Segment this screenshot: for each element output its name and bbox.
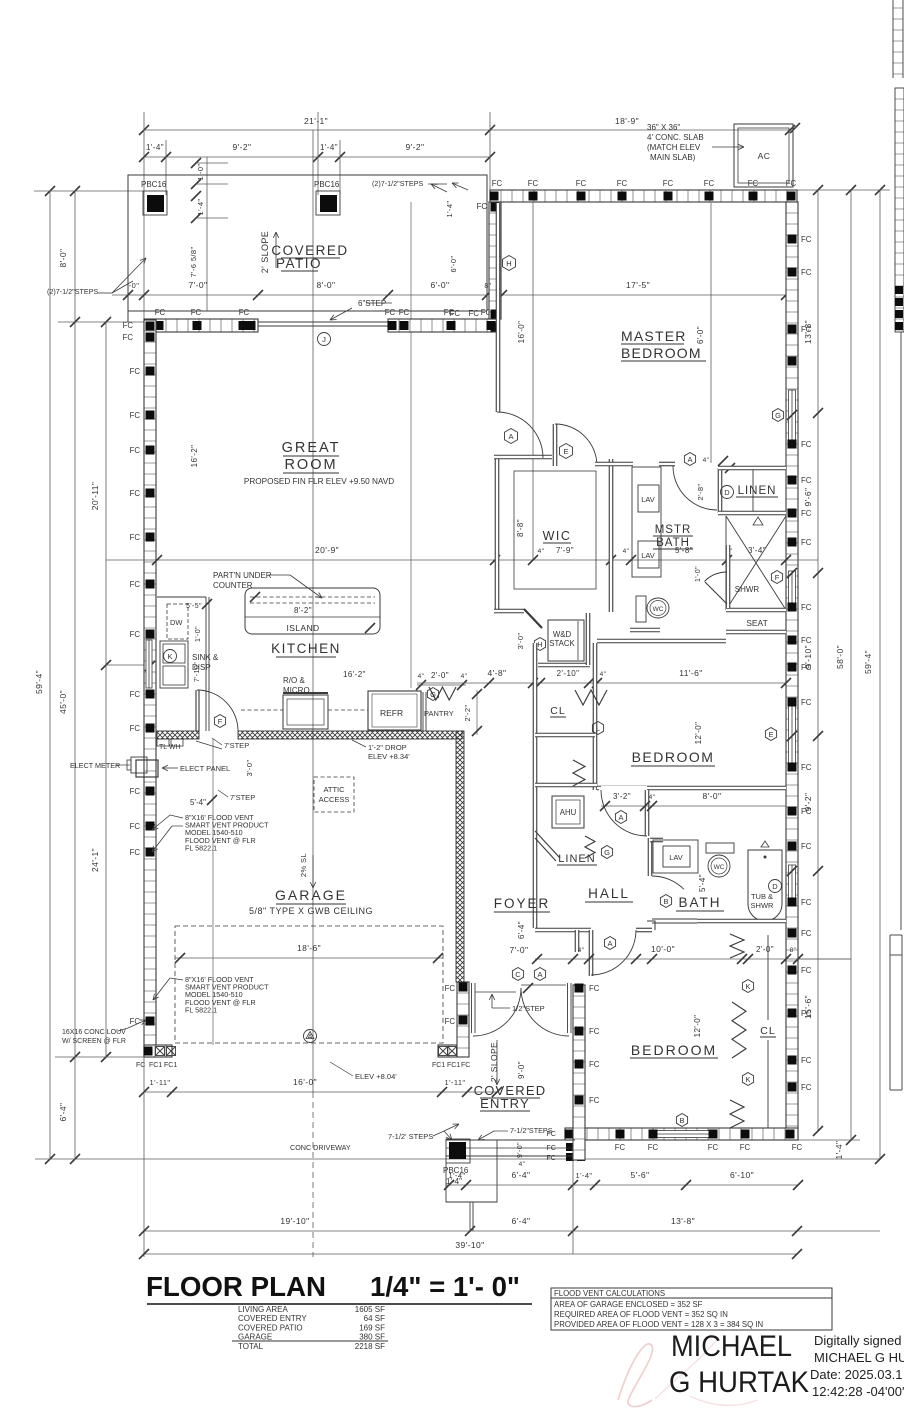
- svg-text:FC: FC: [450, 309, 461, 318]
- svg-text:4": 4": [538, 548, 545, 555]
- svg-text:(2)7-1/2"STEPS: (2)7-1/2"STEPS: [47, 287, 98, 296]
- svg-text:4": 4": [623, 548, 630, 555]
- svg-text:L: L: [596, 724, 600, 733]
- svg-text:2'-2": 2'-2": [463, 705, 472, 722]
- svg-text:FC: FC: [663, 179, 674, 188]
- svg-text:FC: FC: [801, 898, 812, 907]
- svg-text:FC: FC: [801, 1083, 812, 1092]
- svg-text:3'-0": 3'-0": [245, 760, 254, 777]
- svg-text:FC: FC: [469, 309, 480, 318]
- svg-text:6"STEP: 6"STEP: [358, 299, 386, 308]
- svg-text:4' CONC. SLAB: 4' CONC. SLAB: [647, 133, 704, 142]
- svg-text:A: A: [537, 970, 542, 979]
- svg-text:FC: FC: [130, 822, 141, 831]
- svg-text:FC: FC: [801, 509, 812, 518]
- svg-text:21'-1": 21'-1": [304, 116, 328, 126]
- svg-text:20'-11": 20'-11": [90, 482, 100, 511]
- svg-text:ELEV +8.34': ELEV +8.34': [368, 752, 410, 761]
- svg-text:2'-8": 2'-8": [696, 484, 705, 501]
- svg-text:FC: FC: [477, 202, 488, 211]
- svg-text:C: C: [515, 970, 521, 979]
- svg-text:AC: AC: [758, 151, 771, 161]
- svg-text:4": 4": [578, 947, 585, 954]
- svg-text:16'-0": 16'-0": [517, 321, 526, 344]
- svg-text:18'-6": 18'-6": [297, 943, 321, 953]
- svg-text:18'-9": 18'-9": [615, 116, 639, 126]
- svg-text:4": 4": [461, 673, 468, 680]
- svg-text:64 SF: 64 SF: [364, 1314, 385, 1323]
- svg-text:1'-11": 1'-11": [445, 1078, 466, 1087]
- svg-text:6'-4": 6'-4": [58, 1103, 68, 1122]
- svg-text:ELECT PANEL: ELECT PANEL: [180, 764, 230, 773]
- svg-text:LIVING AREA: LIVING AREA: [238, 1305, 288, 1314]
- svg-text:FC: FC: [801, 663, 812, 672]
- svg-text:FC: FC: [191, 308, 202, 317]
- svg-text:FC: FC: [801, 1009, 812, 1018]
- svg-text:FC: FC: [130, 630, 141, 639]
- svg-text:16X16 CONC LOUV: 16X16 CONC LOUV: [62, 1029, 126, 1036]
- svg-text:FC: FC: [704, 179, 715, 188]
- svg-text:380 SF: 380 SF: [359, 1333, 385, 1342]
- svg-text:59'-4": 59'-4": [34, 670, 44, 694]
- svg-text:58'-0": 58'-0": [835, 645, 845, 669]
- svg-text:COUNTER: COUNTER: [213, 581, 253, 590]
- svg-text:LINEN: LINEN: [738, 485, 777, 497]
- svg-text:45'-0": 45'-0": [58, 690, 68, 714]
- svg-text:KITCHEN: KITCHEN: [271, 641, 341, 656]
- svg-text:SHWR: SHWR: [735, 585, 760, 594]
- svg-text:8'-0": 8'-0": [317, 280, 336, 290]
- svg-text:1'-0": 1'-0": [196, 164, 205, 181]
- svg-text:5'-6": 5'-6": [631, 1170, 650, 1180]
- svg-text:8'-8": 8'-8": [516, 519, 525, 537]
- svg-text:FC: FC: [130, 446, 141, 455]
- svg-text:9'-0": 9'-0": [517, 1061, 526, 1079]
- svg-text:FC: FC: [239, 308, 250, 317]
- svg-text:PATIO: PATIO: [276, 256, 322, 271]
- svg-text:FC: FC: [385, 308, 396, 317]
- svg-text:FC: FC: [546, 1153, 556, 1162]
- svg-text:FC: FC: [445, 984, 456, 993]
- svg-text:1605 SF: 1605 SF: [355, 1305, 385, 1314]
- svg-text:D: D: [724, 488, 730, 497]
- svg-text:GREAT: GREAT: [282, 440, 341, 456]
- svg-text:COVERED PATIO: COVERED PATIO: [238, 1323, 303, 1332]
- svg-text:ELECT METER: ELECT METER: [70, 761, 120, 770]
- svg-text:AHU: AHU: [560, 808, 577, 817]
- svg-text:ENTRY: ENTRY: [480, 1096, 530, 1111]
- svg-text:FC: FC: [589, 1027, 600, 1036]
- svg-text:6'-0": 6'-0": [449, 256, 458, 273]
- svg-text:CL: CL: [760, 1025, 775, 1037]
- svg-text:FC: FC: [801, 235, 812, 244]
- svg-text:BEDROOM: BEDROOM: [621, 345, 702, 361]
- svg-text:4": 4": [418, 673, 425, 680]
- svg-text:12:42:28 -04'00': 12:42:28 -04'00': [812, 1384, 904, 1399]
- svg-text:WIC: WIC: [543, 529, 572, 543]
- svg-text:1'-4": 1'-4": [445, 201, 454, 218]
- svg-text:169 SF: 169 SF: [359, 1323, 385, 1332]
- svg-text:FC: FC: [801, 476, 812, 485]
- svg-text:FLOOR PLAN: FLOOR PLAN: [146, 1271, 326, 1302]
- svg-text:3'-0": 3'-0": [516, 633, 525, 650]
- svg-text:6'-4": 6'-4": [517, 921, 526, 939]
- svg-text:7'-9": 7'-9": [556, 546, 574, 555]
- svg-text:1'-4": 1'-4": [146, 143, 164, 152]
- svg-text:11'-6": 11'-6": [679, 668, 702, 678]
- svg-text:TOTAL: TOTAL: [238, 1342, 264, 1351]
- svg-text:17'-5": 17'-5": [626, 280, 650, 290]
- svg-text:FC: FC: [801, 268, 812, 277]
- svg-text:FC: FC: [576, 179, 587, 188]
- svg-text:LAV: LAV: [641, 551, 655, 560]
- svg-text:FC: FC: [130, 489, 141, 498]
- svg-text:FC: FC: [130, 848, 141, 857]
- svg-text:FC: FC: [492, 179, 503, 188]
- svg-text:MAIN SLAB): MAIN SLAB): [650, 153, 696, 162]
- svg-text:4'-8": 4'-8": [488, 668, 507, 678]
- svg-text:FC: FC: [130, 367, 141, 376]
- svg-text:A: A: [618, 813, 623, 822]
- svg-text:1'-0": 1'-0": [695, 566, 702, 582]
- svg-text:FC: FC: [130, 787, 141, 796]
- svg-text:FC: FC: [801, 538, 812, 547]
- svg-text:2'-0": 2'-0": [431, 671, 449, 680]
- svg-text:FC: FC: [801, 698, 812, 707]
- svg-text:1/2"STEP: 1/2"STEP: [512, 1004, 545, 1013]
- svg-text:5/8" TYPE X GWB CEILING: 5/8" TYPE X GWB CEILING: [249, 906, 373, 916]
- svg-text:36" X 36": 36" X 36": [647, 123, 680, 132]
- svg-text:FC: FC: [801, 440, 812, 449]
- svg-text:Date: 2025.03.1: Date: 2025.03.1: [810, 1367, 903, 1382]
- svg-text:9'-6": 9'-6": [803, 488, 813, 507]
- svg-text:PROPOSED FIN FLR ELEV +9.50 NA: PROPOSED FIN FLR ELEV +9.50 NAVD: [244, 477, 394, 486]
- svg-text:12'-0": 12'-0": [693, 1015, 702, 1038]
- svg-text:1'-2" DROP: 1'-2" DROP: [368, 743, 407, 752]
- svg-text:6'-10": 6'-10": [730, 1170, 754, 1180]
- svg-text:G: G: [604, 848, 610, 857]
- svg-text:2'-0": 2'-0": [756, 945, 774, 954]
- svg-text:(2)7-1/2"STEPS: (2)7-1/2"STEPS: [372, 179, 423, 188]
- svg-text:5'-4": 5'-4": [698, 874, 707, 892]
- svg-text:FC: FC: [801, 763, 812, 772]
- svg-text:A: A: [687, 455, 692, 464]
- svg-text:6'-4": 6'-4": [512, 1170, 531, 1180]
- svg-text:FC: FC: [130, 580, 141, 589]
- svg-text:PANTRY: PANTRY: [424, 709, 454, 718]
- svg-text:-0": -0": [129, 281, 140, 290]
- svg-text:SHWR: SHWR: [751, 901, 774, 910]
- svg-text:7-1/2' STEPS: 7-1/2' STEPS: [388, 1132, 433, 1141]
- svg-text:16'-2": 16'-2": [190, 445, 199, 468]
- svg-text:A: A: [508, 432, 513, 441]
- svg-text:FC: FC: [801, 966, 812, 975]
- svg-text:ISLAND: ISLAND: [286, 623, 319, 633]
- svg-text:8'-0": 8'-0": [703, 791, 722, 801]
- svg-text:G HURTAK: G HURTAK: [669, 1366, 809, 1399]
- svg-text:13'-8": 13'-8": [671, 1216, 695, 1226]
- svg-text:1'-11": 1'-11": [150, 1078, 171, 1087]
- svg-text:19'-10": 19'-10": [280, 1216, 309, 1226]
- svg-text:9'-2": 9'-2": [233, 142, 252, 152]
- svg-text:1/4" = 1'- 0": 1/4" = 1'- 0": [370, 1271, 520, 1302]
- svg-text:K: K: [745, 1075, 750, 1084]
- svg-text:FC: FC: [445, 1017, 456, 1026]
- svg-text:W/ SCREEN @ FLR: W/ SCREEN @ FLR: [62, 1038, 126, 1045]
- svg-text:FL 5822.1: FL 5822.1: [185, 1005, 217, 1014]
- svg-text:STACK: STACK: [549, 639, 575, 648]
- svg-text:FC: FC: [589, 984, 600, 993]
- svg-text:FC: FC: [130, 724, 141, 733]
- svg-text:GARAGE: GARAGE: [238, 1333, 272, 1342]
- svg-text:FL 5822.1: FL 5822.1: [185, 843, 217, 852]
- svg-text:9'-0": 9'-0": [517, 1142, 524, 1158]
- svg-text:WC: WC: [653, 606, 664, 613]
- svg-text:FC: FC: [801, 325, 812, 334]
- svg-text:20'-9": 20'-9": [315, 545, 339, 555]
- svg-text:FC: FC: [801, 929, 812, 938]
- svg-text:PBC16: PBC16: [314, 180, 340, 189]
- svg-text:(MATCH ELEV: (MATCH ELEV: [647, 143, 701, 152]
- svg-text:1'-4": 1'-4": [834, 1141, 844, 1160]
- svg-text:7-1/2"STEPS: 7-1/2"STEPS: [510, 1126, 553, 1135]
- svg-text:6'-4": 6'-4": [512, 1216, 531, 1226]
- svg-text:FC: FC: [792, 1143, 803, 1152]
- svg-text:4": 4": [649, 794, 656, 801]
- svg-text:ACCESS: ACCESS: [319, 795, 350, 804]
- svg-text:A: A: [307, 1032, 312, 1041]
- svg-text:6'-0": 6'-0": [696, 326, 705, 344]
- svg-text:8": 8": [484, 283, 491, 290]
- svg-text:FC: FC: [801, 842, 812, 851]
- svg-text:1'-4": 1'-4": [320, 143, 338, 152]
- svg-text:MICHAEL: MICHAEL: [671, 1330, 792, 1363]
- svg-text:FC1: FC1: [164, 1062, 177, 1069]
- svg-text:F: F: [775, 573, 780, 582]
- svg-text:2218 SF: 2218 SF: [355, 1342, 385, 1351]
- svg-text:1'-0": 1'-0": [195, 626, 202, 642]
- svg-text:8'-0": 8'-0": [58, 249, 68, 268]
- svg-text:FC: FC: [461, 1062, 470, 1069]
- svg-text:REQUIRED AREA OF FLOOD VENT =: REQUIRED AREA OF FLOOD VENT = 352 SQ IN: [554, 1310, 728, 1319]
- svg-text:6'-0": 6'-0": [431, 280, 450, 290]
- svg-text:CONC DRIVEWAY: CONC DRIVEWAY: [290, 1143, 351, 1152]
- svg-text:FC1: FC1: [432, 1062, 445, 1069]
- svg-text:2' SLOPE: 2' SLOPE: [489, 1042, 499, 1082]
- svg-text:3'-2": 3'-2": [613, 792, 631, 801]
- svg-text:FC: FC: [801, 603, 812, 612]
- svg-text:D: D: [772, 882, 778, 891]
- svg-text:FC: FC: [740, 1143, 751, 1152]
- svg-text:LAV: LAV: [641, 495, 655, 504]
- svg-text:W&D: W&D: [553, 630, 572, 639]
- svg-text:FC: FC: [801, 807, 812, 816]
- svg-text:FC: FC: [589, 1096, 600, 1105]
- svg-text:16'-0": 16'-0": [293, 1077, 317, 1087]
- svg-text:H: H: [537, 640, 542, 649]
- svg-text:2% SL: 2% SL: [299, 853, 308, 877]
- svg-text:BEDROOM: BEDROOM: [632, 749, 715, 765]
- svg-text:FC: FC: [615, 1143, 626, 1152]
- svg-text:B: B: [663, 897, 668, 906]
- svg-text:4": 4": [703, 457, 710, 464]
- svg-text:7'-6 5/8": 7'-6 5/8": [189, 246, 198, 277]
- svg-text:FC: FC: [546, 1143, 556, 1152]
- svg-text:FC: FC: [130, 690, 141, 699]
- svg-text:8": 8": [790, 947, 797, 954]
- svg-text:REFR: REFR: [380, 708, 403, 718]
- svg-text:59'-4": 59'-4": [863, 650, 873, 674]
- svg-text:4": 4": [600, 671, 607, 678]
- svg-text:FC: FC: [528, 179, 539, 188]
- svg-text:3'-4": 3'-4": [748, 546, 766, 555]
- svg-text:MICRO: MICRO: [283, 686, 310, 695]
- svg-text:FC: FC: [801, 1056, 812, 1065]
- svg-text:SINK &: SINK &: [192, 653, 219, 662]
- svg-text:MSTR: MSTR: [655, 524, 692, 536]
- svg-text:PART'N UNDER: PART'N UNDER: [213, 571, 272, 580]
- svg-text:A: A: [607, 939, 612, 948]
- svg-text:G: G: [775, 411, 781, 420]
- svg-text:FC1: FC1: [149, 1062, 162, 1069]
- svg-text:BATH: BATH: [678, 895, 721, 910]
- svg-text:7'STEP: 7'STEP: [230, 793, 255, 802]
- svg-text:CL: CL: [550, 705, 565, 717]
- svg-text:B: B: [679, 1116, 684, 1125]
- svg-text:FC: FC: [617, 179, 628, 188]
- svg-text:5'-4": 5'-4": [190, 798, 206, 807]
- svg-text:FC: FC: [589, 1060, 600, 1069]
- svg-text:Digitally signed: Digitally signed: [814, 1333, 901, 1348]
- svg-text:FC: FC: [399, 308, 410, 317]
- svg-text:PROVIDED AREA OF FLOOD VENT =: PROVIDED AREA OF FLOOD VENT = 128 X 3 = …: [554, 1320, 763, 1329]
- svg-text:1'-4": 1'-4": [576, 1171, 593, 1180]
- svg-text:2'-10": 2'-10": [557, 669, 580, 678]
- svg-text:COVERED ENTRY: COVERED ENTRY: [238, 1314, 307, 1323]
- svg-text:DW: DW: [170, 618, 183, 627]
- svg-text:FC: FC: [130, 411, 141, 420]
- svg-text:TL WH: TL WH: [159, 744, 181, 751]
- svg-text:G: G: [430, 690, 436, 699]
- svg-text:H: H: [506, 259, 511, 268]
- svg-text:2' SLOPE: 2' SLOPE: [260, 231, 270, 273]
- svg-text:12'-0": 12'-0": [694, 722, 703, 745]
- svg-text:24'-1": 24'-1": [90, 848, 100, 872]
- svg-text:FC: FC: [123, 333, 134, 342]
- svg-text:MICHAEL G HUR: MICHAEL G HUR: [814, 1350, 904, 1365]
- svg-text:5'-5": 5'-5": [186, 603, 202, 610]
- svg-text:HALL: HALL: [588, 886, 630, 901]
- svg-text:FC1: FC1: [447, 1062, 460, 1069]
- svg-text:SEAT: SEAT: [746, 618, 768, 628]
- svg-text:8'-2": 8'-2": [294, 606, 312, 615]
- svg-text:9'-2": 9'-2": [406, 142, 425, 152]
- svg-text:7'STEP: 7'STEP: [224, 741, 249, 750]
- svg-text:GARAGE: GARAGE: [275, 887, 347, 903]
- svg-text:FC: FC: [801, 636, 812, 645]
- svg-text:FLOOD VENT CALCULATIONS: FLOOD VENT CALCULATIONS: [554, 1289, 665, 1298]
- svg-text:MASTER: MASTER: [621, 328, 687, 344]
- svg-text:FOYER: FOYER: [494, 896, 551, 911]
- svg-text:16'-2": 16'-2": [343, 670, 366, 679]
- svg-text:FC: FC: [648, 1143, 659, 1152]
- svg-text:TUB &: TUB &: [751, 892, 773, 901]
- svg-text:FC: FC: [155, 308, 166, 317]
- svg-text:7'-0": 7'-0": [189, 280, 208, 290]
- svg-text:F: F: [218, 717, 223, 726]
- svg-text:7'-0": 7'-0": [510, 945, 529, 955]
- svg-text:E: E: [563, 447, 568, 456]
- svg-text:WC: WC: [714, 864, 725, 871]
- svg-text:J: J: [322, 335, 326, 344]
- svg-text:FC: FC: [130, 533, 141, 542]
- svg-text:LAV: LAV: [669, 853, 683, 862]
- svg-text:ATTIC: ATTIC: [323, 785, 345, 794]
- svg-text:E: E: [768, 730, 773, 739]
- svg-text:AREA OF GARAGE ENCLOSED = 352: AREA OF GARAGE ENCLOSED = 352 SF: [554, 1300, 703, 1309]
- svg-text:R/O &: R/O &: [283, 676, 305, 685]
- svg-text:K: K: [745, 982, 750, 991]
- svg-text:K: K: [167, 652, 172, 661]
- svg-text:BEDROOM: BEDROOM: [631, 1042, 717, 1058]
- svg-text:10'-0": 10'-0": [651, 944, 675, 954]
- svg-text:4": 4": [519, 1161, 526, 1168]
- svg-text:BATH: BATH: [656, 537, 690, 549]
- svg-text:7'-10": 7'-10": [194, 662, 201, 682]
- svg-text:ELEV +8.04': ELEV +8.04': [355, 1072, 397, 1081]
- svg-text:FC: FC: [123, 321, 134, 330]
- svg-text:ROOM: ROOM: [284, 457, 337, 473]
- svg-text:39'-10": 39'-10": [455, 1240, 484, 1250]
- svg-text:1'-4": 1'-4": [449, 1171, 466, 1180]
- svg-text:FC: FC: [708, 1143, 719, 1152]
- svg-text:PBC16: PBC16: [141, 180, 167, 189]
